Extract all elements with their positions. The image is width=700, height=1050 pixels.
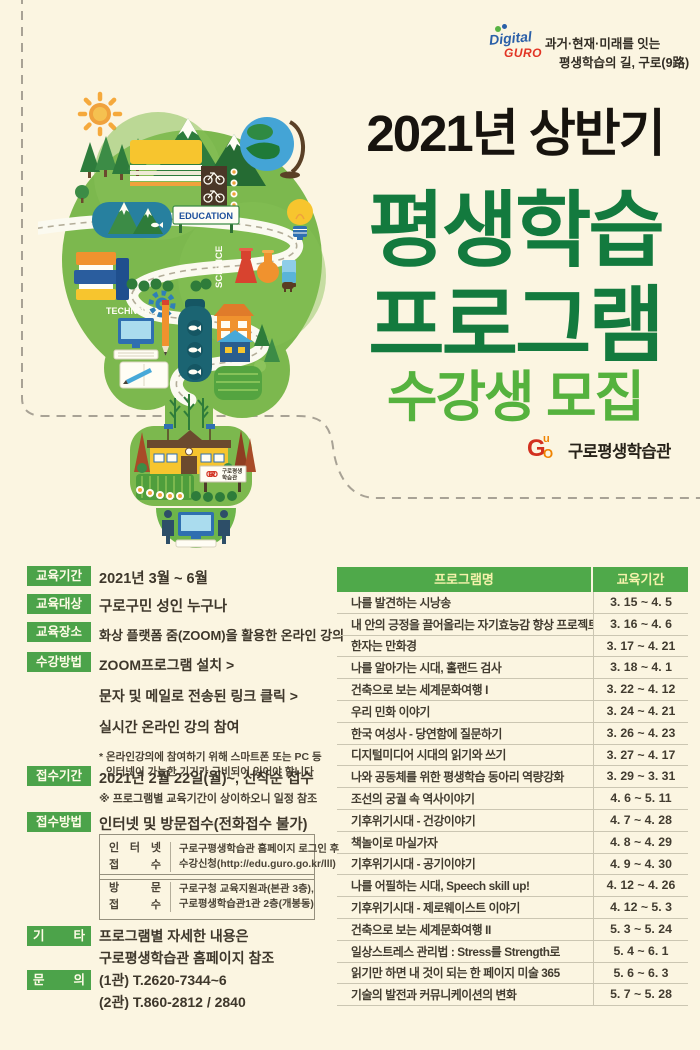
tagline-line1: 과거·현재·미래를 잇는 — [545, 35, 689, 54]
program-name: 한자는 만화경 — [337, 637, 593, 654]
visit-text-line2: 구로평생학습관1관 2층(개봉동) — [179, 897, 314, 912]
program-name: 나를 알아가는 시대, 홀랜드 검사 — [337, 659, 593, 676]
internet-label-line1: 인 터 넷 — [109, 840, 161, 857]
contact-label: 문 의 — [27, 970, 91, 990]
edu-period-value: 2021년 3월 ~ 6월 — [99, 567, 208, 588]
table-row: 조선의 궁궐 속 역사이야기 4. 6 ~ 5. 11 — [337, 788, 688, 810]
program-period: 3. 18 ~ 4. 1 — [593, 657, 688, 678]
program-name: 우리 민화 이야기 — [337, 703, 593, 720]
method-step: 문자 및 메일로 전송된 링크 클릭 > — [99, 681, 298, 712]
program-period: 3. 22 ~ 4. 12 — [593, 679, 688, 700]
program-period: 4. 8 ~ 4. 29 — [593, 832, 688, 853]
program-period: 3. 29 ~ 3. 31 — [593, 766, 688, 787]
program-name: 조선의 궁궐 속 역사이야기 — [337, 790, 593, 807]
program-period: 5. 7 ~ 5. 28 — [593, 984, 688, 1005]
program-name: 기후위기시대 - 건강이야기 — [337, 812, 593, 829]
table-header: 프로그램명 교육기간 — [337, 567, 688, 592]
contact-text: (1관) T.2620-7344~6 (2관) T.860-2812 / 284… — [99, 970, 246, 1013]
internet-text-line1: 구로구평생학습관 홈페이지 로그인 후 — [179, 842, 339, 857]
visit-apply-box: 방 문 접 수 구로구청 교육지원과(본관 3층), 구로평생학습관1관 2층(… — [99, 874, 315, 920]
table-row: 일상스트레스 관리법 : Stress를 Strength로 5. 4 ~ 6.… — [337, 941, 688, 963]
guro-logo-mark-icon: G u O — [527, 436, 560, 464]
program-period: 4. 12 ~ 4. 26 — [593, 875, 688, 896]
program-period: 3. 24 ~ 4. 21 — [593, 701, 688, 722]
program-table: 프로그램명 교육기간 나를 발견하는 시낭송 3. 15 ~ 4. 5 내 안의… — [337, 567, 688, 1006]
program-name: 나를 발견하는 시낭송 — [337, 594, 593, 611]
tagline-line2: 평생학습의 길, 구로(9路) — [545, 54, 689, 73]
edu-place-value: 화상 플랫폼 줌(ZOOM)을 활용한 온라인 강의 — [99, 625, 344, 644]
table-row: 기술의 발전과 커뮤니케이션의 변화 5. 7 ~ 5. 28 — [337, 984, 688, 1006]
table-row: 내 안의 긍정을 끌어올리는 자기효능감 향상 프로젝트 3. 16 ~ 4. … — [337, 614, 688, 636]
program-name: 건축으로 보는 세계문화여행 I — [337, 681, 593, 698]
contact-line2: (2관) T.860-2812 / 2840 — [99, 992, 246, 1014]
program-name: 읽기만 하면 내 것이 되는 한 페이지 미술 365 — [337, 964, 593, 981]
logo-mark-u: u — [543, 433, 550, 445]
program-period: 3. 15 ~ 4. 5 — [593, 592, 688, 613]
etc-line1: 프로그램별 자세한 내용은 — [99, 926, 274, 948]
method-note-line1: * 온라인강의에 참여하기 위해 스마트폰 또는 PC 등 — [99, 750, 322, 765]
table-body: 나를 발견하는 시낭송 3. 15 ~ 4. 5 내 안의 긍정을 끌어올리는 … — [337, 592, 688, 1006]
table-row: 기후위기시대 - 건강이야기 4. 7 ~ 4. 28 — [337, 810, 688, 832]
apply-method-value: 인터넷 및 방문접수(전화접수 불가) — [99, 813, 308, 834]
logo-guro-text: GURO — [504, 46, 542, 60]
program-name: 일상스트레스 관리법 : Stress를 Strength로 — [337, 943, 593, 960]
apply-method-label: 접수방법 — [27, 812, 91, 832]
method-step: 실시간 온라인 강의 참여 — [99, 712, 298, 743]
program-name: 디지털미디어 시대의 읽기와 쓰기 — [337, 746, 593, 763]
etc-text: 프로그램별 자세한 내용은 구로평생학습관 홈페이지 참조 — [99, 926, 274, 969]
visit-label-line2: 접 수 — [109, 897, 161, 914]
internet-label-line2: 접 수 — [109, 857, 161, 874]
program-name: 기후위기시대 - 제로웨이스트 이야기 — [337, 899, 593, 916]
program-period: 3. 17 ~ 4. 21 — [593, 636, 688, 657]
program-period: 3. 27 ~ 4. 17 — [593, 745, 688, 766]
program-period: 5. 4 ~ 6. 1 — [593, 941, 688, 962]
table-row: 나를 어필하는 시대, Speech skill up! 4. 12 ~ 4. … — [337, 875, 688, 897]
program-period: 5. 3 ~ 5. 24 — [593, 919, 688, 940]
table-row: 기후위기시대 - 제로웨이스트 이야기 4. 12 ~ 5. 3 — [337, 897, 688, 919]
edu-place-label: 교육장소 — [27, 622, 91, 642]
edu-target-value: 구로구민 성인 누구나 — [99, 595, 227, 616]
program-period: 3. 16 ~ 4. 6 — [593, 614, 688, 635]
table-row: 건축으로 보는 세계문화여행 I 3. 22 ~ 4. 12 — [337, 679, 688, 701]
internet-text-line2: 수강신청(http://edu.guro.go.kr/lll) — [179, 857, 339, 872]
table-row: 나를 알아가는 시대, 홀랜드 검사 3. 18 ~ 4. 1 — [337, 657, 688, 679]
program-name: 책놀이로 마실가자 — [337, 834, 593, 851]
table-row: 한자는 만화경 3. 17 ~ 4. 21 — [337, 636, 688, 658]
program-period: 4. 7 ~ 4. 28 — [593, 810, 688, 831]
program-name: 기술의 발전과 커뮤니케이션의 변화 — [337, 986, 593, 1003]
program-period: 3. 26 ~ 4. 23 — [593, 723, 688, 744]
guro-lifelong-learning-logo: G u O 구로평생학습관 — [527, 436, 671, 464]
digital-guro-logo: Digital GURO — [487, 28, 545, 66]
table-row: 우리 민화 이야기 3. 24 ~ 4. 21 — [337, 701, 688, 723]
table-row: 한국 여성사 - 당연함에 질문하기 3. 26 ~ 4. 23 — [337, 723, 688, 745]
poster-title-year: 2021년 상반기 — [338, 92, 692, 166]
table-row: 나와 공동체를 위한 평생학습 동아리 역량강화 3. 29 ~ 3. 31 — [337, 766, 688, 788]
method-step: ZOOM프로그램 설치 > — [99, 650, 298, 681]
table-row: 기후위기시대 - 공기이야기 4. 9 ~ 4. 30 — [337, 854, 688, 876]
table-row: 나를 발견하는 시낭송 3. 15 ~ 4. 5 — [337, 592, 688, 614]
org-name: 구로평생학습관 — [568, 438, 671, 462]
method-steps: ZOOM프로그램 설치 >문자 및 메일로 전송된 링크 클릭 >실시간 온라인… — [99, 650, 298, 743]
edu-period-label: 교육기간 — [27, 566, 91, 586]
visit-label-line1: 방 문 — [109, 880, 161, 897]
logo-digital-text: Digital — [488, 28, 532, 48]
program-period: 4. 9 ~ 4. 30 — [593, 854, 688, 875]
table-row: 건축으로 보는 세계문화여행 II 5. 3 ~ 5. 24 — [337, 919, 688, 941]
logo-mark-o: O — [543, 446, 553, 461]
contact-line1: (1관) T.2620-7344~6 — [99, 970, 246, 992]
method-label: 수강방법 — [27, 652, 91, 672]
program-name: 내 안의 긍정을 끌어올리는 자기효능감 향상 프로젝트 — [337, 616, 593, 633]
apply-period-note: ※ 프로그램별 교육기간이 상이하오니 일정 참조 — [99, 790, 317, 806]
program-name: 건축으로 보는 세계문화여행 II — [337, 921, 593, 938]
program-period: 4. 12 ~ 5. 3 — [593, 897, 688, 918]
program-name: 기후위기시대 - 공기이야기 — [337, 855, 593, 872]
program-period: 5. 6 ~ 6. 3 — [593, 963, 688, 984]
program-name: 나와 공동체를 위한 평생학습 동아리 역량강화 — [337, 768, 593, 785]
header-period: 교육기간 — [593, 567, 688, 592]
info-column: 교육기간 2021년 3월 ~ 6월 교육대상 구로구민 성인 누구나 교육장소… — [25, 0, 340, 1050]
visit-text-line1: 구로구청 교육지원과(본관 3층), — [179, 882, 314, 897]
etc-label: 기 타 — [27, 926, 91, 946]
etc-line2: 구로평생학습관 홈페이지 참조 — [99, 948, 274, 970]
table-row: 읽기만 하면 내 것이 되는 한 페이지 미술 365 5. 6 ~ 6. 3 — [337, 963, 688, 985]
table-row: 디지털미디어 시대의 읽기와 쓰기 3. 27 ~ 4. 17 — [337, 745, 688, 767]
program-name: 나를 어필하는 시대, Speech skill up! — [337, 877, 593, 894]
apply-period-value: 2021년 2월 22일(월)~, 선착순 접수 — [99, 767, 314, 788]
header-program-name: 프로그램명 — [337, 567, 591, 592]
poster-title-line4: 수강생 모집 — [338, 352, 692, 432]
tagline: 과거·현재·미래를 잇는 평생학습의 길, 구로(9路) — [545, 35, 689, 73]
table-row: 책놀이로 마실가자 4. 8 ~ 4. 29 — [337, 832, 688, 854]
program-name: 한국 여성사 - 당연함에 질문하기 — [337, 725, 593, 742]
leaf-dot-icon — [502, 24, 507, 29]
edu-target-label: 교육대상 — [27, 594, 91, 614]
apply-period-label: 접수기간 — [27, 766, 91, 786]
program-period: 4. 6 ~ 5. 11 — [593, 788, 688, 809]
